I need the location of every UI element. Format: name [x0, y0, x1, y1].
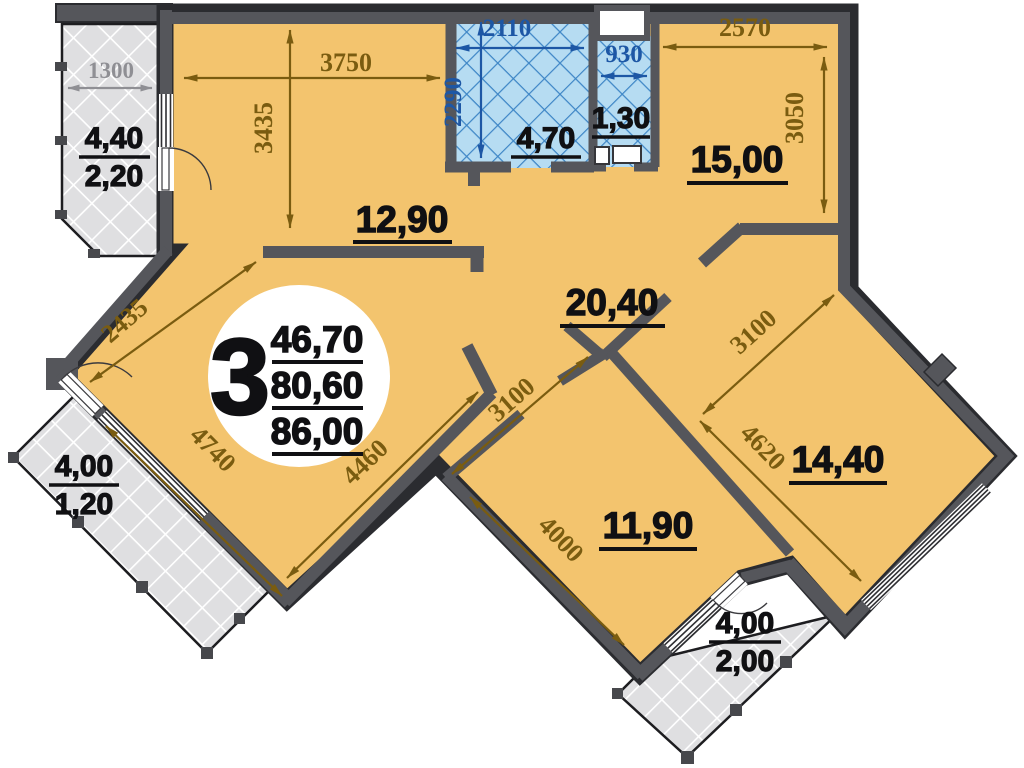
unit-area-2: 80,60: [271, 365, 364, 406]
dim-wc-width: 930: [605, 41, 643, 68]
dim-kitchen-width: 2570: [719, 13, 771, 42]
room-label-living: 20,40: [566, 282, 659, 323]
balcony-bc-area-full: 4,00: [716, 607, 774, 640]
room-label-bottom: 11,90: [603, 505, 694, 546]
balcony-top-wall: [56, 4, 172, 22]
balcony-post: [681, 751, 694, 764]
dim-kitchen-height: 3050: [780, 92, 809, 144]
balcony-tl-area-reduced: 2,20: [85, 160, 143, 193]
dim-bedroom-height: 3435: [249, 102, 278, 154]
room-label-bedroom: 12,90: [356, 199, 449, 240]
balcony-post: [136, 581, 148, 593]
balcony-post: [780, 656, 792, 668]
balcony-post: [55, 62, 67, 71]
balcony-post: [234, 613, 245, 624]
balcony-bl-area-reduced: 1,20: [55, 488, 113, 521]
balcony-tl-area-full: 4,40: [85, 122, 143, 155]
dim-bath-width: 2110: [483, 15, 532, 42]
balcony-bl-area-full: 4,00: [55, 450, 113, 483]
balcony-post: [730, 704, 742, 716]
unit-rooms-count: 3: [210, 316, 270, 437]
wc-fixture: [595, 147, 609, 164]
balcony-bc-area-reduced: 2,00: [716, 645, 774, 678]
dim-bedroom-width: 3750: [320, 48, 372, 77]
floorplan-svg: 3750 3435 2110 2290 930 2570 3050 1300 2…: [0, 0, 1024, 768]
wc-fixture: [613, 146, 641, 163]
balcony-post: [201, 647, 213, 659]
shaft-niche: [597, 8, 647, 38]
unit-info-badge: 3 46,70 80,60 86,00: [208, 285, 390, 467]
dim-balcony-tl: 1300: [88, 58, 134, 83]
balcony-post: [88, 249, 100, 258]
balcony-post: [55, 136, 67, 145]
room-label-kitchen: 15,00: [691, 139, 784, 180]
unit-area-1: 46,70: [271, 319, 364, 360]
window-bedroom-balcony: [159, 94, 173, 148]
unit-area-3: 86,00: [271, 411, 364, 452]
room-label-bath: 4,70: [517, 122, 575, 155]
balcony-post: [55, 210, 67, 219]
dim-bath-height: 2290: [440, 77, 467, 127]
balcony-post: [612, 688, 623, 699]
floorplan-page: 3750 3435 2110 2290 930 2570 3050 1300 2…: [0, 0, 1024, 768]
room-label-wc: 1,30: [592, 102, 650, 135]
room-label-right: 14,40: [792, 439, 885, 480]
balcony-post: [8, 452, 19, 463]
